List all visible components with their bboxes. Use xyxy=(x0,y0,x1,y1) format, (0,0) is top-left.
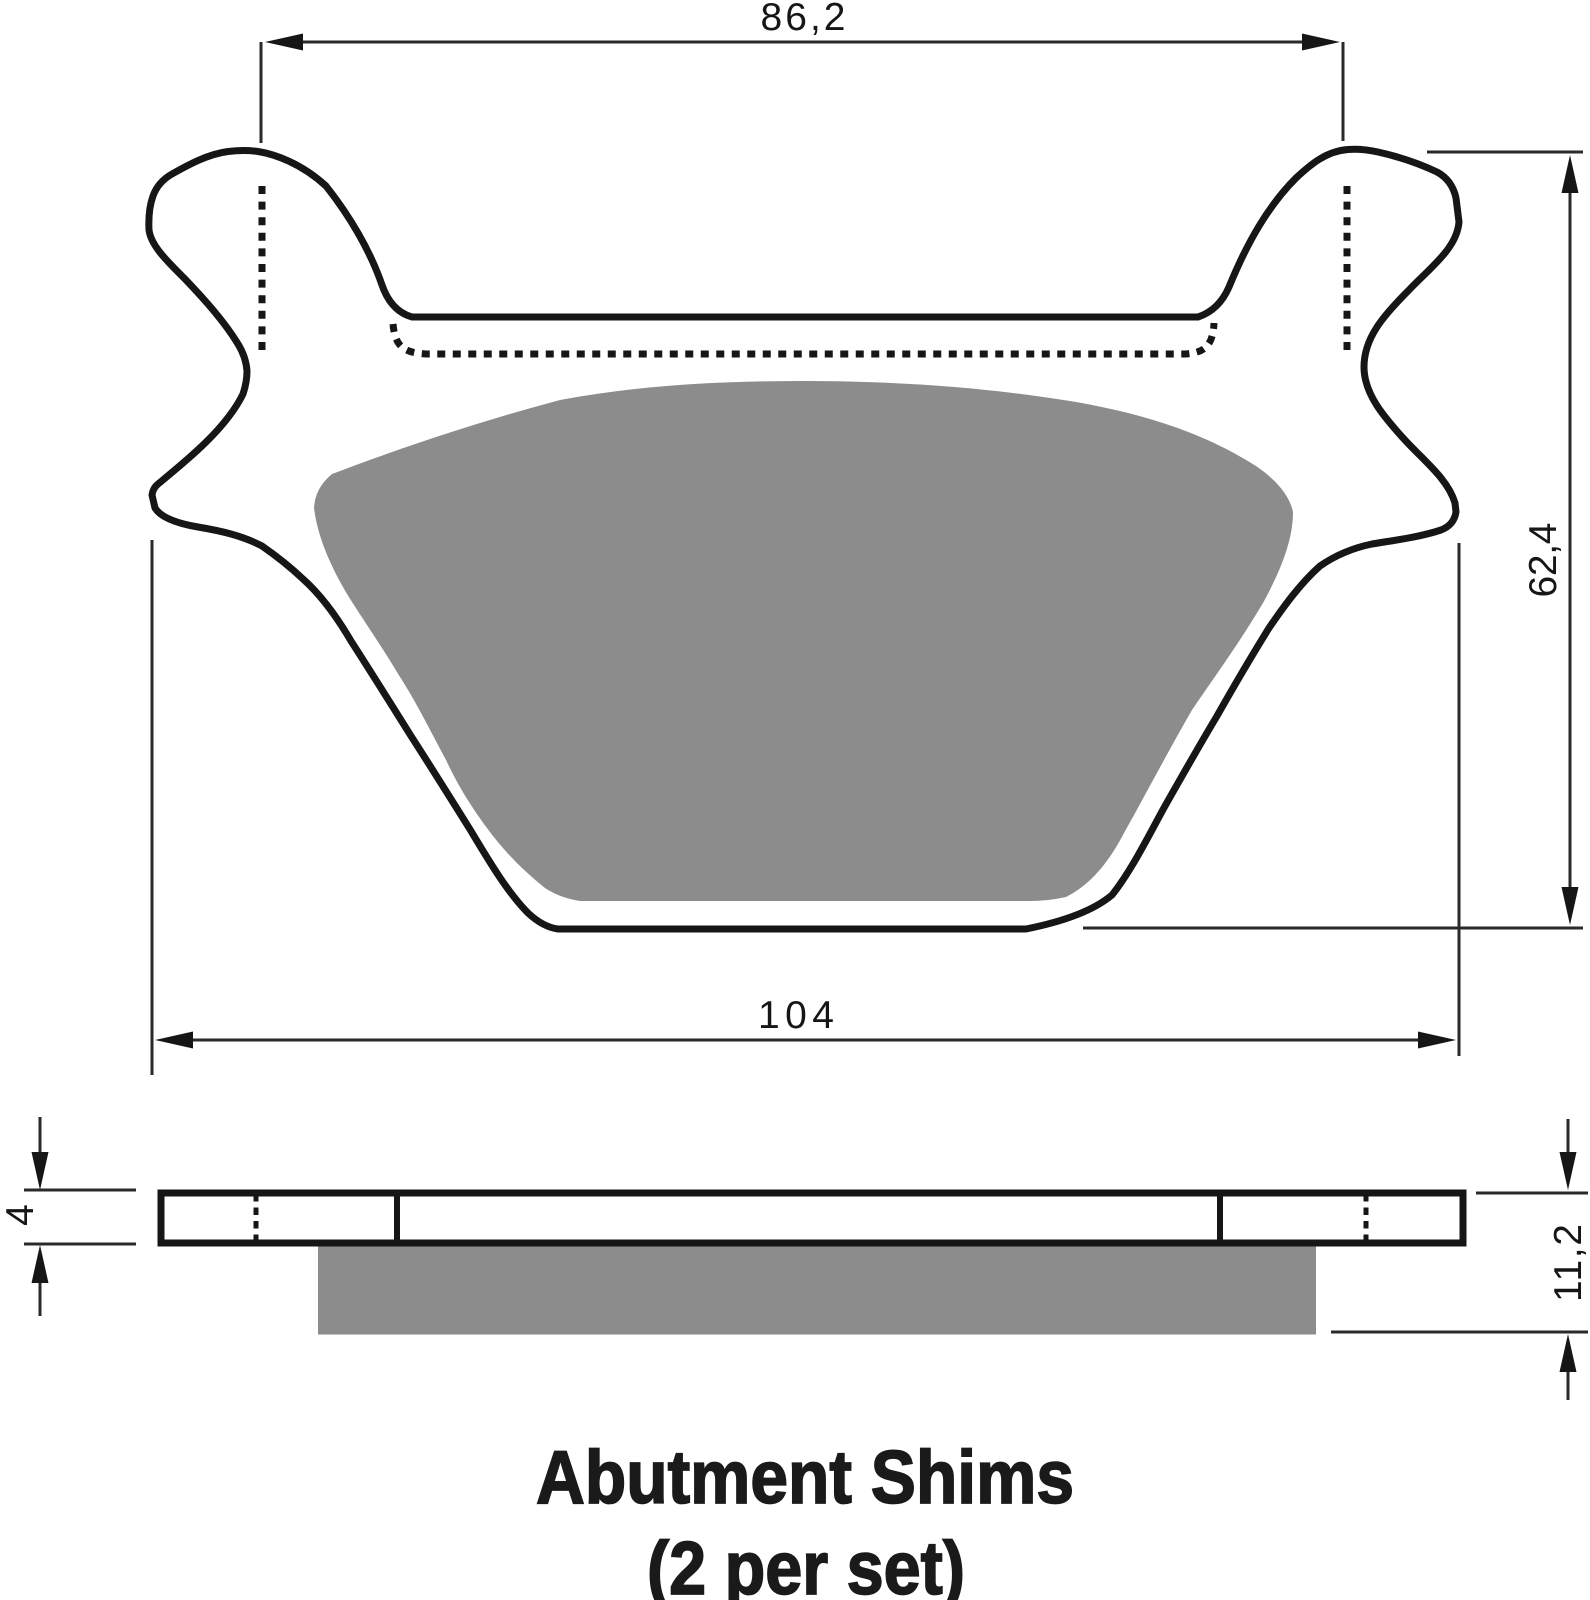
svg-text:11,2: 11,2 xyxy=(1547,1224,1590,1302)
svg-text:86,2: 86,2 xyxy=(761,0,846,39)
svg-text:(2 per set): (2 per set) xyxy=(647,1526,965,1600)
svg-text:104: 104 xyxy=(758,994,834,1037)
svg-text:62,4: 62,4 xyxy=(1522,523,1565,598)
svg-text:4: 4 xyxy=(0,1204,42,1226)
svg-text:Abutment Shims: Abutment Shims xyxy=(536,1435,1074,1519)
